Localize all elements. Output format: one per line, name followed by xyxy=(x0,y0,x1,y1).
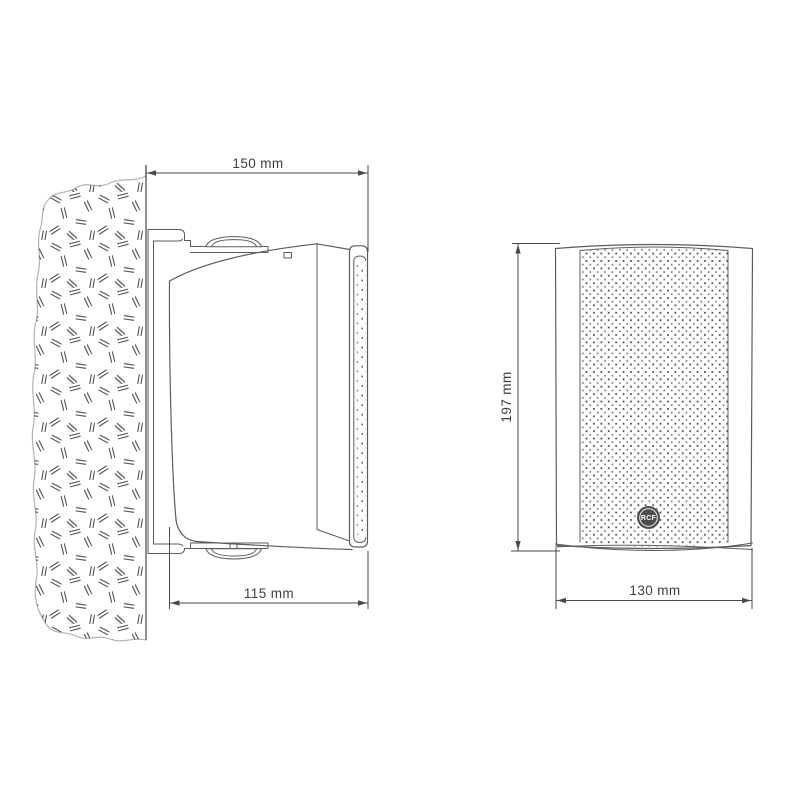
dim-150-arrow-left xyxy=(147,170,156,175)
dim-130-arrow-left xyxy=(557,598,566,603)
rcf-logo: RCF xyxy=(637,506,660,529)
dim-130-arrow-right xyxy=(742,598,751,603)
dim-115-label: 115 mm xyxy=(244,586,294,601)
dim-130-label: 130 mm xyxy=(629,583,680,598)
bracket-screw-top xyxy=(284,253,292,259)
dim-197-arrow-bottom xyxy=(515,541,520,550)
cabinet-top-edge xyxy=(170,244,318,281)
technical-drawing-canvas: 150 mm 115 mm RCF xyxy=(0,0,800,800)
dim-197: 197 mm xyxy=(499,244,560,552)
bracket-top-arm xyxy=(148,230,191,247)
dim-115: 115 mm xyxy=(170,527,369,609)
front-grille-dots xyxy=(578,242,730,548)
side-grille-dots xyxy=(355,262,366,535)
dim-197-label: 197 mm xyxy=(499,371,514,422)
front-view: RCF 197 mm 130 mm xyxy=(499,242,753,609)
rcf-logo-text: RCF xyxy=(641,515,657,522)
wall-hatch-texture xyxy=(32,176,146,641)
speaker-dimension-drawing: 150 mm 115 mm RCF xyxy=(0,0,800,800)
bezel-top-edge xyxy=(317,244,350,250)
side-grille xyxy=(350,246,368,547)
dim-115-arrow-right xyxy=(358,600,367,605)
bracket-top-plate xyxy=(191,247,269,253)
dim-115-arrow-left xyxy=(171,600,180,605)
top-knob-outer xyxy=(206,237,262,247)
front-grille xyxy=(578,242,730,548)
dim-130: 130 mm xyxy=(556,548,752,609)
side-view: 150 mm 115 mm xyxy=(32,156,368,641)
dim-150-label: 150 mm xyxy=(232,156,283,171)
speaker-cabinet-side xyxy=(169,244,352,550)
dim-150: 150 mm xyxy=(146,156,368,252)
bottom-knob-outer xyxy=(206,549,262,559)
cabinet-back-edge xyxy=(169,281,176,520)
bezel-bottom-edge xyxy=(317,530,350,542)
wall-section xyxy=(32,165,146,641)
dim-197-arrow-top xyxy=(515,245,520,254)
dim-150-arrow-right xyxy=(358,170,367,175)
cabinet-bottom-left-curve xyxy=(176,520,196,542)
mounting-bracket xyxy=(148,230,292,560)
